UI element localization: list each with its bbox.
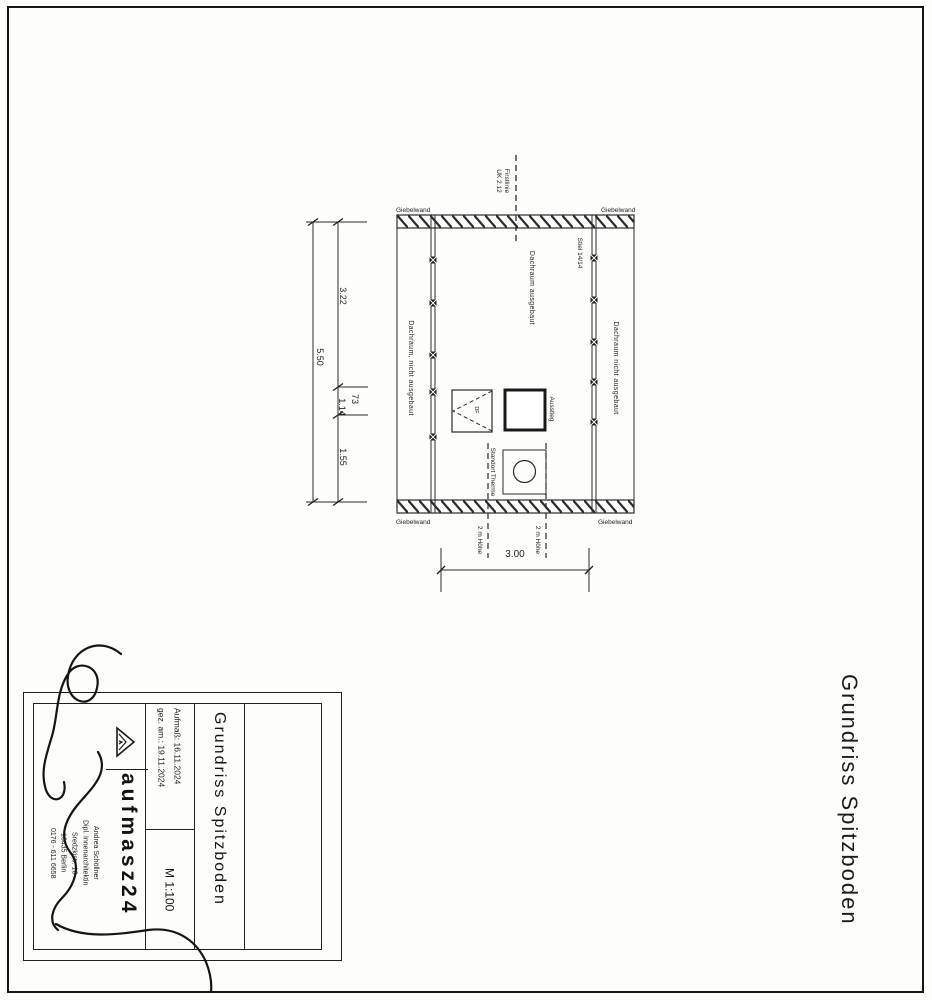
height-label-left: 2 m Höhe [476,526,483,555]
boiler-label: Standort Therme [489,448,496,497]
gable-label-top-right: Giebelwand [601,207,636,214]
ridge-label-line2: UK 2.12 [495,169,502,193]
dim-total-depth: 5.50 [315,348,325,366]
room-label-right: Dachraum nicht ausgebaut [612,321,619,414]
dim-seg-114: 1.14 [337,398,347,416]
attic-hatch [505,390,545,430]
gable-label-bottom-right: Giebelwand [598,519,633,526]
attic-hatch-label: Ausstieg [548,397,555,422]
floor-plan: Firstlinie UK 2.12 Giebelwand Giebelwand… [280,140,680,600]
signature [0,0,260,1000]
boiler-location [503,450,546,494]
sheet-title: Grundriss Spitzboden [836,674,862,926]
ridge-label-line1: Firstlinie [503,169,510,194]
eave-edges [397,228,634,500]
dim-seg-73: 73 [350,394,360,404]
scanned-drawing-sheet: Firstlinie UK 2.12 Giebelwand Giebelwand… [0,0,932,1000]
dim-seg-top: 3.22 [338,287,348,305]
roof-window-label: DF [473,406,479,414]
room-label-center: Dachraum ausgebaut [528,251,535,325]
dim-width-label: 3.00 [505,549,525,560]
gable-label-bottom-left: Giebelwand [396,519,431,526]
gable-wall-bottom [397,500,634,513]
dim-seg-bottom: 1.55 [338,448,348,466]
height-label-right: 2 m Höhe [534,526,541,555]
post-size-label: Stiel 14/14 [576,238,583,269]
gable-label-top-left: Giebelwand [396,207,431,214]
room-label-left: Dachraum, nicht ausgebaut [407,320,414,416]
roof-window [452,390,492,432]
